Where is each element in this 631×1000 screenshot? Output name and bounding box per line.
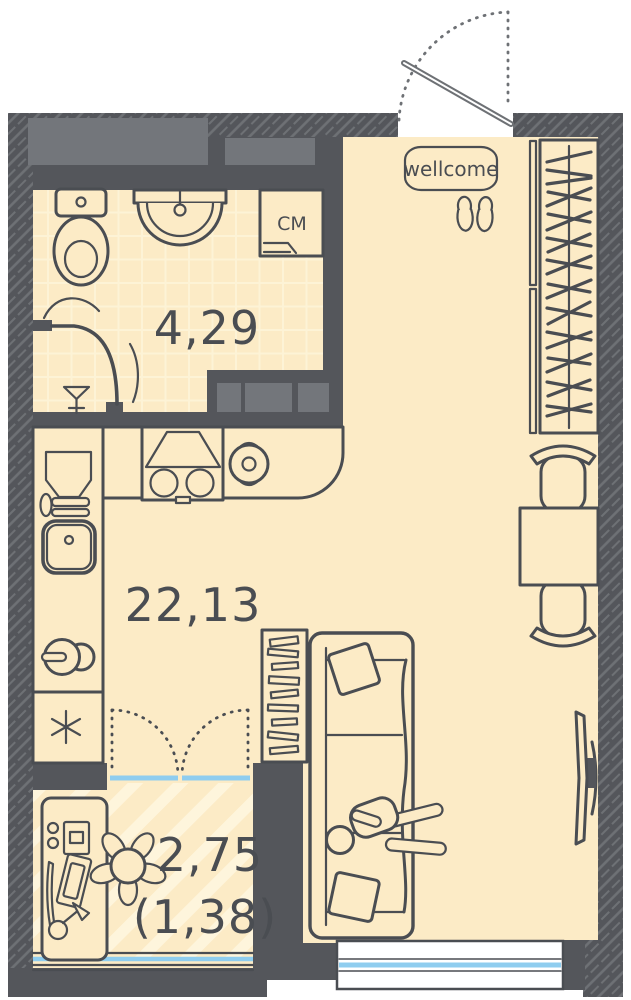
- wellcome-text: wellcome: [404, 157, 499, 181]
- vent-shaft-block-1: [28, 118, 208, 165]
- balcony-area-coefficient-label: (1,38): [133, 890, 277, 944]
- wardrobe-sliding-door-2: [530, 289, 536, 433]
- washer-label: СМ: [277, 213, 307, 235]
- chair-bottom: [531, 580, 595, 646]
- floor-plan: СМ: [0, 0, 631, 1000]
- entry-door-swing-arc: [399, 12, 508, 120]
- washing-machine-icon: СМ: [260, 190, 323, 256]
- sofa-pillow-bottom: [328, 872, 380, 922]
- dining-table: [520, 508, 598, 585]
- kitchen-square-sink-icon: [43, 521, 95, 573]
- bottom-right-corner-wall: [583, 940, 623, 997]
- living-area-label: 22,13: [125, 578, 262, 632]
- wardrobe: [530, 140, 598, 433]
- desk-cup-2: [48, 838, 58, 848]
- right-outer-wall: [598, 113, 623, 997]
- kettle-icon: [42, 640, 94, 675]
- left-outer-wall: [8, 113, 33, 997]
- bathroom-area-label: 4,29: [154, 301, 260, 355]
- cooktop-icon: [142, 427, 223, 503]
- desk-phone: [64, 822, 89, 854]
- kitchen-round-sink-icon: [230, 443, 268, 485]
- bottom-left-wall: [8, 968, 267, 997]
- wellcome-mat: wellcome: [404, 147, 499, 190]
- main-window: [337, 941, 563, 989]
- vent-shaft-block-4: [245, 383, 292, 412]
- entry-door-leaf-inner: [404, 63, 511, 124]
- dish-rack-icon: [46, 452, 91, 497]
- balcony-left-pier: [33, 763, 107, 790]
- fridge: [33, 692, 103, 763]
- vent-shaft-block-2: [225, 138, 315, 165]
- bookshelf: [262, 630, 307, 762]
- chair-top: [531, 446, 595, 512]
- tv-panel: [576, 712, 587, 844]
- faucet-icon: [41, 494, 90, 516]
- person-head: [327, 827, 354, 854]
- desk-cup-1: [48, 823, 58, 833]
- balcony-pier-foot: [253, 943, 337, 980]
- floor-plan-canvas: СМ: [0, 0, 631, 1000]
- balcony-area-label: 2,75: [157, 828, 263, 882]
- entry-door: [399, 12, 511, 124]
- toilet-icon: [54, 189, 108, 285]
- wardrobe-sliding-door-1: [530, 141, 536, 285]
- window-right-jamb: [563, 940, 585, 990]
- vent-shaft-block-5: [298, 383, 329, 412]
- vent-shaft-block-3: [217, 383, 241, 412]
